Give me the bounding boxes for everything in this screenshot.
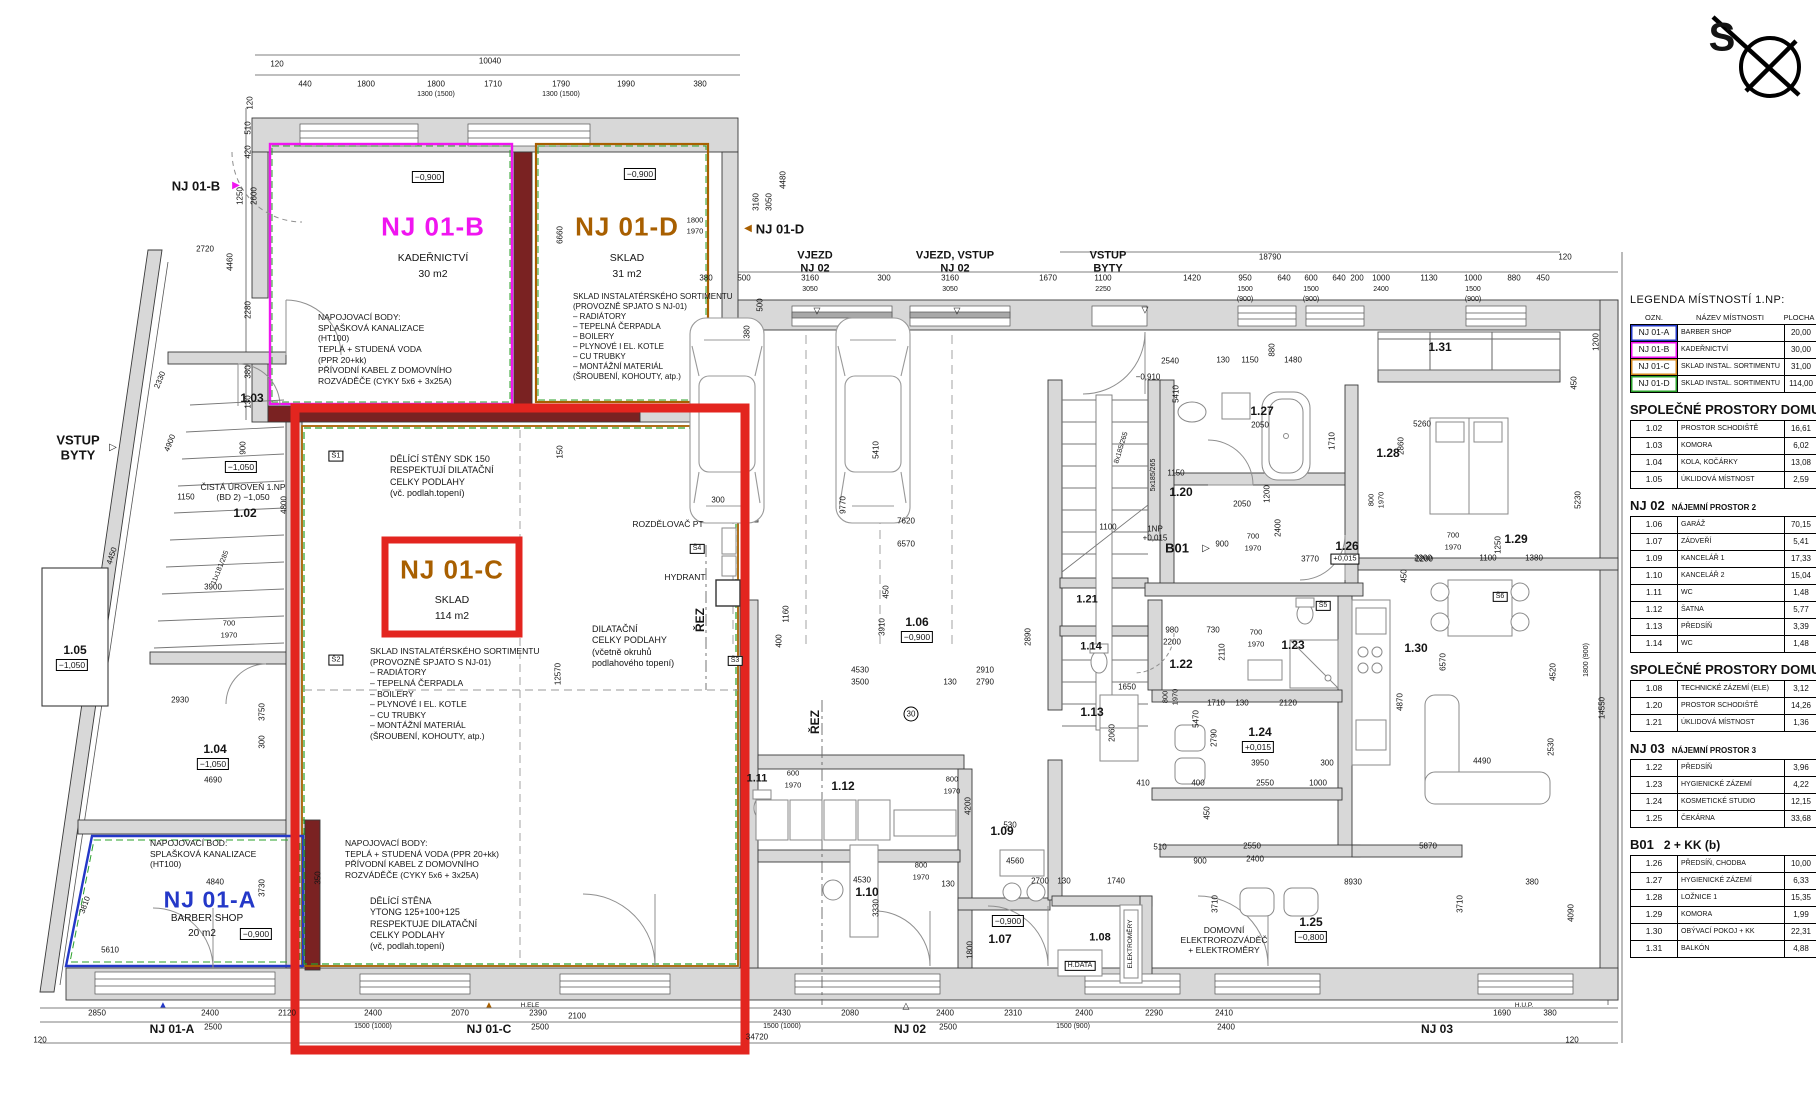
legend-row: 1.20PROSTOR SCHODIŠTĚ14,26: [1631, 697, 1816, 714]
balcony: [1378, 332, 1560, 370]
legend-column-headers: OZN. NÁZEV MÍSTNOSTI PLOCHA: [1630, 311, 1816, 324]
floorplan-page: S12010040440180018001300 (1500)171017901…: [0, 0, 1816, 1101]
legend-title: LEGENDA MÍSTNOSTÍ 1.NP:: [1630, 294, 1816, 306]
plan-drawing: [0, 0, 1816, 1101]
col-plocha: PLOCHA: [1782, 313, 1816, 322]
room-legend: LEGENDA MÍSTNOSTÍ 1.NP: OZN. NÁZEV MÍSTN…: [1630, 294, 1816, 958]
legend-row: 1.28LOŽNICE 115,35: [1631, 889, 1816, 906]
legend-row: 1.14WC1,48: [1631, 635, 1816, 652]
legend-row: 1.10KANCELÁŘ 215,04: [1631, 567, 1816, 584]
stairs-left: [154, 400, 284, 648]
col-ozn: OZN.: [1630, 313, 1678, 322]
legend-row: 1.05ÚKLIDOVÁ MÍSTNOST2,59: [1631, 471, 1816, 488]
unit-outlines: [66, 144, 738, 966]
car-icon: [690, 318, 910, 523]
legend-row: 1.03KOMORA6,02: [1631, 437, 1816, 454]
legend-row: 1.30OBÝVACÍ POKOJ + KK22,31: [1631, 923, 1816, 940]
legend-row: 1.02PROSTOR SCHODIŠTĚ16,61: [1631, 421, 1816, 437]
legend-row: 1.25ČEKÁRNA33,68: [1631, 810, 1816, 827]
room-105-outline: [42, 568, 108, 706]
legend-table-common-2: 1.08TECHNICKÉ ZÁZEMÍ (ELE)3,12 1.20PROST…: [1630, 680, 1816, 732]
legend-row: NJ 01-BKADEŘNICTVÍ30,00: [1631, 341, 1816, 358]
legend-row: 1.31BALKÓN4,88: [1631, 940, 1816, 957]
legend-row: NJ 01-DSKLAD INSTAL. SORTIMENTU114,00: [1631, 375, 1816, 392]
legend-row: 1.24KOSMETICKÉ STUDIO12,15: [1631, 793, 1816, 810]
legend-header-nj03: NJ 03NÁJEMNÍ PROSTOR 3: [1630, 741, 1816, 756]
legend-table-nj03: 1.22PŘEDSÍŇ3,96 1.23HYGIENICKÉ ZÁZEMÍ4,2…: [1630, 759, 1816, 828]
legend-row: 1.22PŘEDSÍŇ3,96: [1631, 760, 1816, 776]
legend-row: 1.12ŠATNA5,77: [1631, 601, 1816, 618]
legend-row: NJ 01-ABARBER SHOP20,00: [1631, 325, 1816, 341]
walls: [40, 118, 1618, 1000]
legend-table-b01: 1.26PŘEDSÍŇ, CHODBA10,00 1.27HYGIENICKÉ …: [1630, 855, 1816, 958]
legend-row: 1.06GARÁŽ70,15: [1631, 517, 1816, 533]
north-icon: [1713, 17, 1799, 96]
legend-header-common-1: SPOLEČNÉ PROSTORY DOMU: [1630, 402, 1816, 417]
legend-table-nj02: 1.06GARÁŽ70,15 1.07ZÁDVEŘÍ5,41 1.09KANCE…: [1630, 516, 1816, 653]
legend-row: 1.09KANCELÁŘ 117,33: [1631, 550, 1816, 567]
legend-header-b01: B012 + KK (b): [1630, 837, 1816, 852]
legend-row: 1.08TECHNICKÉ ZÁZEMÍ (ELE)3,12: [1631, 681, 1816, 697]
legend-row: 1.11WC1,48: [1631, 584, 1816, 601]
legend-row: 1.23HYGIENICKÉ ZÁZEMÍ4,22: [1631, 776, 1816, 793]
legend-row: 1.27HYGIENICKÉ ZÁZEMÍ6,33: [1631, 872, 1816, 889]
col-nazev: NÁZEV MÍSTNOSTI: [1678, 313, 1782, 322]
legend-row: 1.04KOLA, KOČÁRKY13,08: [1631, 454, 1816, 471]
legend-table-nj01: NJ 01-ABARBER SHOP20,00 NJ 01-BKADEŘNICT…: [1630, 324, 1816, 393]
legend-header-nj02: NJ 02NÁJEMNÍ PROSTOR 2: [1630, 498, 1816, 513]
legend-row: NJ 01-CSKLAD INSTAL. SORTIMENTU31,00: [1631, 358, 1816, 375]
legend-row: 1.07ZÁDVEŘÍ5,41: [1631, 533, 1816, 550]
stairs-middle: [1062, 395, 1148, 730]
legend-header-common-2: SPOLEČNÉ PROSTORY DOMU: [1630, 662, 1816, 677]
legend-table-common-1: 1.02PROSTOR SCHODIŠTĚ16,61 1.03KOMORA6,0…: [1630, 420, 1816, 489]
legend-row: 1.26PŘEDSÍŇ, CHODBA10,00: [1631, 856, 1816, 872]
legend-row: 1.21ÚKLIDOVÁ MÍSTNOST1,36: [1631, 714, 1816, 731]
legend-row: 1.13PŘEDSÍŇ3,39: [1631, 618, 1816, 635]
legend-row: 1.29KOMORA1,99: [1631, 906, 1816, 923]
